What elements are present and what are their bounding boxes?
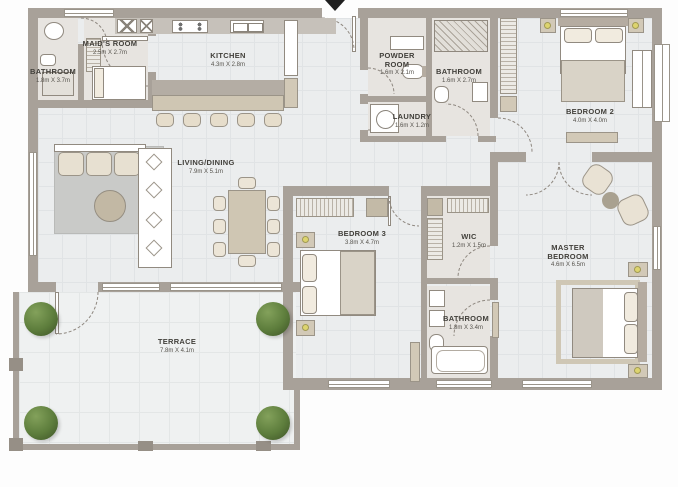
room-label-kitchen: KITCHEN 4.3m X 2.8m <box>188 52 268 69</box>
bar-stool <box>264 113 282 127</box>
stove <box>172 20 208 33</box>
closet-shelf <box>427 198 443 216</box>
dining-chair <box>213 196 226 211</box>
room-label-bathroom-master: BATHROOM 1.8m X 3.4m <box>438 315 494 332</box>
room-label-wic: WIC 1.2m X 1.5m <box>444 233 494 250</box>
bench <box>566 132 618 143</box>
shower <box>434 20 488 52</box>
pillow <box>624 324 638 354</box>
lamp <box>302 236 309 243</box>
closet <box>296 198 354 217</box>
blanket <box>561 60 625 102</box>
terrace-plant <box>256 406 290 440</box>
blanket <box>340 251 375 315</box>
wardrobe <box>500 18 517 94</box>
lamp <box>302 324 309 331</box>
dining-table <box>228 190 266 254</box>
door-leaf <box>410 342 420 382</box>
bar-stool <box>183 113 201 127</box>
pillow <box>94 68 104 98</box>
sofa-cushion <box>58 152 84 176</box>
sofa-cushion <box>114 152 140 176</box>
kitchen-island <box>152 80 284 95</box>
kitchen-sink <box>230 20 264 33</box>
stove-burners <box>173 21 207 32</box>
closet <box>427 218 443 260</box>
toilet-tank <box>422 66 426 77</box>
dining-chair <box>238 255 256 267</box>
dresser <box>500 96 517 112</box>
pillow <box>624 292 638 322</box>
lamp <box>634 266 641 273</box>
lamp <box>544 22 551 29</box>
terrace-plant <box>24 302 58 336</box>
toilet <box>40 54 56 66</box>
sofa-back <box>54 144 146 152</box>
appliance <box>140 19 153 33</box>
sink-basin <box>233 23 248 32</box>
bar-stool <box>210 113 228 127</box>
sink <box>472 82 488 102</box>
room-label-bedroom-2: BEDROOM 2 4.0m X 4.0m <box>555 108 625 125</box>
coffee-table <box>94 190 126 222</box>
kitchen-island-counter <box>152 95 284 111</box>
sink-basin <box>248 23 263 32</box>
fridge <box>284 20 298 76</box>
blanket <box>573 289 603 357</box>
room-label-maids-room: MAID'S ROOM 2.5m X 2.7m <box>75 40 145 57</box>
bathtub-basin <box>436 350 485 372</box>
sink <box>44 22 64 40</box>
room-label-bedroom-3: BEDROOM 3 3.8m X 4.7m <box>327 230 397 247</box>
room-label-bathroom-2: BATHROOM 1.6m X 2.7m <box>431 68 487 85</box>
dining-chair <box>267 196 280 211</box>
sink <box>390 36 424 50</box>
floor-plan: BATHROOM 1.8m X 3.7m MAID'S ROOM 2.5m X … <box>0 0 678 487</box>
room-label-powder-room: POWDER ROOM 1.6m X 2.1m <box>375 52 419 77</box>
headboard <box>558 18 628 26</box>
headboard <box>638 282 647 362</box>
closet <box>447 198 489 213</box>
closet-shelf <box>366 198 388 217</box>
sink <box>429 290 445 307</box>
terrace-plant <box>24 406 58 440</box>
pillow <box>564 28 592 43</box>
room-label-laundry: LAUNDRY 1.6m X 1.2m <box>384 113 440 130</box>
wardrobe-door-split <box>642 51 643 107</box>
lamp <box>634 367 641 374</box>
sofa-cushion <box>86 152 112 176</box>
pillow <box>595 28 623 43</box>
toilet <box>434 86 449 103</box>
appliance <box>117 19 137 33</box>
dining-chair <box>267 219 280 234</box>
dining-chair <box>238 177 256 189</box>
pillow <box>302 286 317 314</box>
cabinet <box>284 78 298 108</box>
dining-chair <box>213 242 226 257</box>
terrace-plant <box>256 302 290 336</box>
room-label-master-bedroom: MASTER BEDROOM 4.6m X 6.5m <box>538 244 598 269</box>
dining-chair <box>213 219 226 234</box>
lamp <box>632 22 639 29</box>
pillow <box>302 254 317 282</box>
bathtub <box>431 346 488 374</box>
room-label-bathroom-maids: BATHROOM 1.8m X 3.7m <box>18 68 88 85</box>
room-label-living-dining: LIVING/DINING 7.9m X 5.1m <box>164 159 248 176</box>
room-label-terrace: TERRACE 7.8m X 4.1m <box>137 338 217 355</box>
wardrobe <box>632 50 652 108</box>
bar-stool <box>156 113 174 127</box>
dining-chair <box>267 242 280 257</box>
bar-stool <box>237 113 255 127</box>
